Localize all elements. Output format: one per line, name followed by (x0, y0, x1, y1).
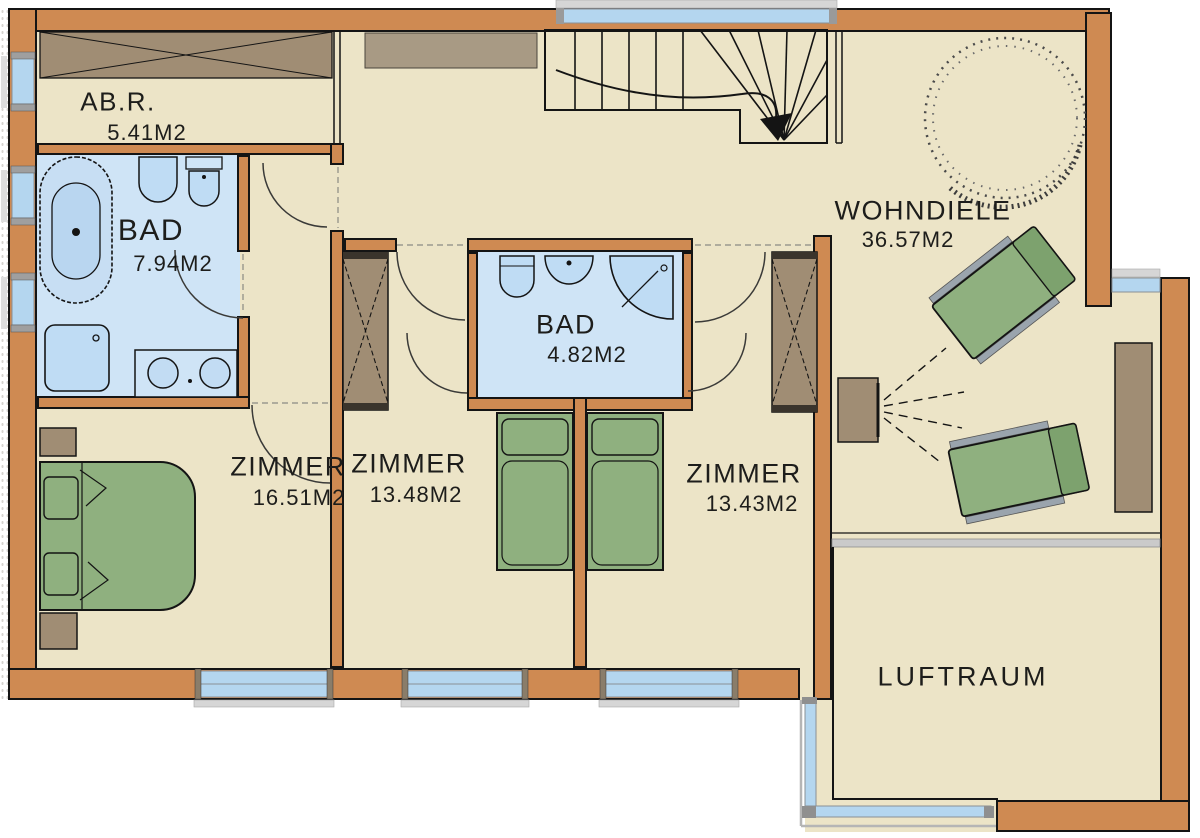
room-label-zimmer-left-area: 16.51M2 (253, 485, 346, 511)
door-zimmer-middle (397, 252, 465, 320)
sink-icon (545, 256, 593, 284)
abr-partition (334, 32, 340, 143)
lounger-bottom (947, 415, 1092, 524)
window-top (556, 0, 837, 24)
single-bed-right (587, 413, 663, 570)
window-bottom-right (599, 669, 739, 707)
room-label-abr-name: AB.R. (80, 87, 155, 118)
room-label-zimmer-middle-area: 13.48M2 (370, 482, 463, 508)
room-label-wohndiele-name: WOHNDIELE (834, 196, 1011, 227)
glass-balustrade (801, 697, 996, 826)
single-bed-left (497, 413, 573, 570)
window-bottom-middle (401, 669, 529, 707)
toilet-cistern (186, 157, 222, 169)
room-label-wohndiele-area: 36.57M2 (862, 227, 955, 253)
dryer-icon (200, 358, 230, 388)
staircase (545, 30, 842, 143)
room-label-luftraum: LUFTRAUM (878, 662, 1049, 693)
window-right-niche (1112, 269, 1160, 292)
hall-sideboard (365, 33, 537, 68)
dotted-circle-decor (925, 38, 1085, 207)
floor-plan: AB.R. 5.41M2 BAD 7.94M2 BAD 4.82M2 ZIMME… (0, 0, 1200, 838)
nightstand (40, 428, 76, 456)
room-label-zimmer-middle-name: ZIMMER (351, 449, 466, 480)
door-zimmer-right (695, 252, 765, 322)
pillow (502, 419, 568, 455)
sink-icon (139, 157, 177, 202)
nightstand (40, 613, 77, 649)
pillow (592, 419, 658, 455)
window-bottom-left (194, 669, 334, 707)
wardrobe-zimmer-middle (343, 252, 388, 410)
washer-icon (148, 358, 178, 388)
room-label-bad-middle-area: 4.82M2 (547, 342, 626, 368)
room-label-bad-left-name: BAD (118, 214, 184, 248)
room-label-bad-middle-name: BAD (536, 310, 596, 341)
wardrobe-zimmer-right (772, 252, 817, 412)
window-left-3 (1, 273, 35, 332)
wohndiele-sideboard (1115, 343, 1152, 512)
door-swing-arcs (175, 163, 813, 483)
door-corridor (263, 163, 327, 227)
room-label-zimmer-right-area: 13.43M2 (706, 491, 799, 517)
abr-shelf-hatch (40, 32, 332, 78)
tv-cabinet (838, 348, 964, 462)
door-bad-middle-right (688, 333, 746, 391)
drain-icon (72, 228, 80, 236)
pillow (44, 477, 78, 519)
double-bed (40, 428, 195, 649)
room-label-bad-left-area: 7.94M2 (133, 251, 212, 277)
room-label-zimmer-left-name: ZIMMER (230, 452, 345, 483)
room-label-abr-area: 5.41M2 (107, 120, 186, 146)
window-left-2 (1, 166, 35, 225)
window-left-1 (1, 52, 35, 111)
pillow (44, 553, 78, 595)
toilet-icon (500, 256, 534, 297)
bathroom-left-fixtures (40, 157, 237, 397)
door-bad-middle-left (407, 333, 467, 393)
room-label-zimmer-right-name: ZIMMER (686, 459, 801, 490)
shower-icon (45, 325, 109, 391)
